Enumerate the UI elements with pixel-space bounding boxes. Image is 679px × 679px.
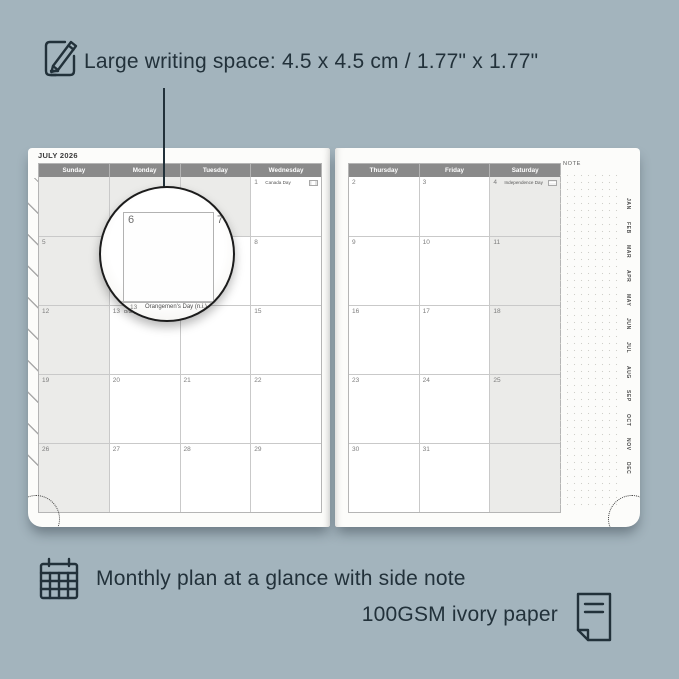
magnified-grid-line xyxy=(109,301,225,302)
calendar-cell: 4Independence Day xyxy=(490,177,560,236)
magnified-holiday-label: Orangemen's Day (n.i.) xyxy=(145,304,207,310)
calendar-right: ThursdayFridaySaturday234Independence Da… xyxy=(348,163,561,513)
writing-space-outline xyxy=(123,212,214,303)
calendar-cell: 17 xyxy=(420,306,491,374)
date-number: 22 xyxy=(254,377,261,384)
calendar-cell: 8 xyxy=(251,237,321,305)
flag-icon xyxy=(209,305,218,312)
right-page: ThursdayFridaySaturday234Independence Da… xyxy=(335,148,640,527)
date-number: 3 xyxy=(423,179,427,186)
month-tab-oct: OCT xyxy=(617,408,639,432)
magnified-date: 13 xyxy=(130,304,137,311)
month-tabs: JANFEBMARAPRMAYJUNJULAUGSEPOCTNOVDEC xyxy=(617,192,639,480)
date-number: 15 xyxy=(254,308,261,315)
date-number: 30 xyxy=(352,446,359,453)
week-row: 3031 xyxy=(349,443,560,512)
month-tab-label: FEB xyxy=(625,222,631,234)
date-number: 18 xyxy=(493,308,500,315)
paper-caption: 100GSM ivory paper xyxy=(0,603,558,627)
plan-caption: Monthly plan at a glance with side note xyxy=(96,567,466,591)
month-tab-feb: FEB xyxy=(617,216,639,240)
month-tab-label: AUG xyxy=(625,366,631,379)
week-row: 232425 xyxy=(349,374,560,443)
day-header-row: SundayMondayTuesdayWednesday xyxy=(39,164,321,177)
date-number: 19 xyxy=(42,377,49,384)
week-row: 91011 xyxy=(349,236,560,305)
paper-sheet-icon xyxy=(574,592,614,642)
month-tab-dec: DEC xyxy=(617,456,639,480)
month-tab-jun: JUN xyxy=(617,312,639,336)
magnified-date: 7 xyxy=(217,214,223,226)
month-tab-label: DEC xyxy=(625,462,631,474)
calendar-cell: 25 xyxy=(490,375,560,443)
date-number: 16 xyxy=(352,308,359,315)
day-header: Thursday xyxy=(349,164,420,177)
date-number: 2 xyxy=(352,179,356,186)
date-number: 8 xyxy=(254,239,258,246)
date-number: 5 xyxy=(42,239,46,246)
pencil-note-icon xyxy=(38,33,82,81)
month-tab-label: OCT xyxy=(625,414,631,426)
calendar-cell: 12 xyxy=(39,306,110,374)
date-number: 23 xyxy=(352,377,359,384)
week-row: 234Independence Day xyxy=(349,177,560,236)
day-header: Friday xyxy=(420,164,491,177)
month-tab-label: JUN xyxy=(625,318,631,330)
month-tab-apr: APR xyxy=(617,264,639,288)
month-tab-label: MAY xyxy=(625,294,631,306)
note-dot-grid xyxy=(557,172,621,510)
month-tab-label: JUL xyxy=(625,342,631,353)
calendar-cell: 9 xyxy=(349,237,420,305)
date-number: 26 xyxy=(42,446,49,453)
calendar-cell: 31 xyxy=(420,444,491,512)
month-title: JULY 2026 xyxy=(38,151,78,160)
calendar-cell: 22 xyxy=(251,375,321,443)
month-tab-jul: JUL xyxy=(617,336,639,360)
date-number: 13 xyxy=(113,308,120,315)
date-number: 11 xyxy=(493,239,500,246)
date-number: 10 xyxy=(423,239,430,246)
date-number: 4 xyxy=(493,179,497,186)
date-number: 28 xyxy=(184,446,191,453)
calendar-cell: 18 xyxy=(490,306,560,374)
flag-icon xyxy=(309,180,318,187)
calendar-cell: 1Canada Day xyxy=(251,177,321,236)
holiday-label: Canada Day xyxy=(265,180,291,185)
calendar-cell: 11 xyxy=(490,237,560,305)
date-number: 24 xyxy=(423,377,430,384)
calendar-cell: 28 xyxy=(181,444,252,512)
month-tab-mar: MAR xyxy=(617,240,639,264)
calendar-cell: 10 xyxy=(420,237,491,305)
date-number: 21 xyxy=(184,377,191,384)
month-tab-jan: JAN xyxy=(617,192,639,216)
calendar-cell: 29 xyxy=(251,444,321,512)
perforation-corner-right xyxy=(604,491,640,527)
product-image: Large writing space: 4.5 x 4.5 cm / 1.77… xyxy=(0,0,679,679)
date-number: 12 xyxy=(42,308,49,315)
month-tab-may: MAY xyxy=(617,288,639,312)
date-number: 1 xyxy=(254,179,258,186)
month-tab-label: MAR xyxy=(625,245,631,258)
month-tab-label: APR xyxy=(625,270,631,282)
calendar-cell: 23 xyxy=(349,375,420,443)
top-caption: Large writing space: 4.5 x 4.5 cm / 1.77… xyxy=(84,50,538,74)
calendar-cell: 24 xyxy=(420,375,491,443)
day-header: Monday xyxy=(110,164,181,177)
flag-icon xyxy=(548,180,557,187)
day-header: Sunday xyxy=(39,164,110,177)
holiday-label: Independence Day xyxy=(504,180,543,185)
calendar-grid-icon xyxy=(38,557,80,601)
calendar-cell: 19 xyxy=(39,375,110,443)
calendar-cell: 20 xyxy=(110,375,181,443)
calendar-cell: 2 xyxy=(349,177,420,236)
day-header-row: ThursdayFridaySaturday xyxy=(349,164,560,177)
calendar-cell: 30 xyxy=(349,444,420,512)
month-tab-aug: AUG xyxy=(617,360,639,384)
week-row: 26272829 xyxy=(39,443,321,512)
date-number: 9 xyxy=(352,239,356,246)
calendar-cell: 21 xyxy=(181,375,252,443)
calendar-cell: 16 xyxy=(349,306,420,374)
week-row: 161718 xyxy=(349,305,560,374)
month-tab-label: SEP xyxy=(625,390,631,402)
month-tab-sep: SEP xyxy=(617,384,639,408)
magnifier-circle: 6 7 13 Orangemen's Day (n.i.) xyxy=(99,186,235,322)
magnified-date: 6 xyxy=(128,214,134,226)
day-header: Tuesday xyxy=(181,164,252,177)
date-number: 31 xyxy=(423,446,430,453)
calendar-cell: 15 xyxy=(251,306,321,374)
calendar-cell: 3 xyxy=(420,177,491,236)
day-header: Wednesday xyxy=(251,164,321,177)
date-number: 27 xyxy=(113,446,120,453)
connector-line xyxy=(163,88,165,188)
date-number: 17 xyxy=(423,308,430,315)
month-tab-label: JAN xyxy=(625,198,631,210)
calendar-cell: 27 xyxy=(110,444,181,512)
date-number: 25 xyxy=(493,377,500,384)
perforation-corner-left xyxy=(28,491,64,527)
week-row: 19202122 xyxy=(39,374,321,443)
month-tab-nov: NOV xyxy=(617,432,639,456)
date-number: 20 xyxy=(113,377,120,384)
day-header: Saturday xyxy=(490,164,560,177)
note-label: NOTE xyxy=(563,161,581,167)
calendar-cell xyxy=(490,444,560,512)
date-number: 29 xyxy=(254,446,261,453)
month-tab-label: NOV xyxy=(625,438,631,451)
calendar-cell xyxy=(39,177,110,236)
